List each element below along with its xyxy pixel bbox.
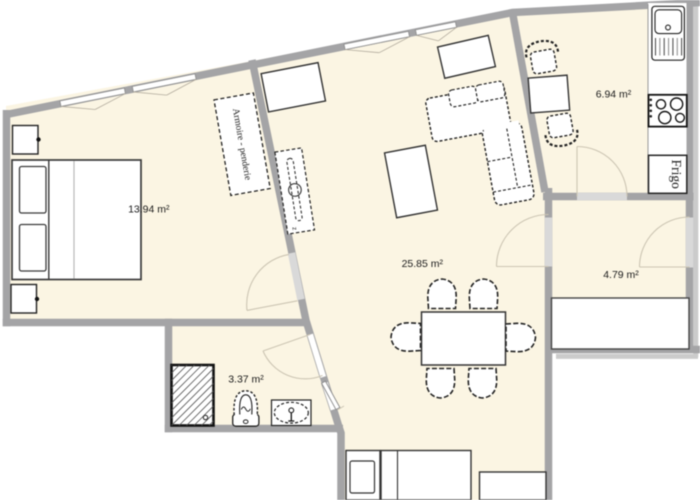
svg-text:13.94 m²: 13.94 m² [128, 204, 170, 216]
svg-text:25.85 m²: 25.85 m² [402, 258, 444, 270]
svg-text:6.94 m²: 6.94 m² [596, 89, 632, 101]
svg-text:4.79 m²: 4.79 m² [603, 269, 639, 281]
svg-text:Frigo: Frigo [669, 160, 684, 190]
svg-text:3.37 m²: 3.37 m² [228, 374, 264, 386]
